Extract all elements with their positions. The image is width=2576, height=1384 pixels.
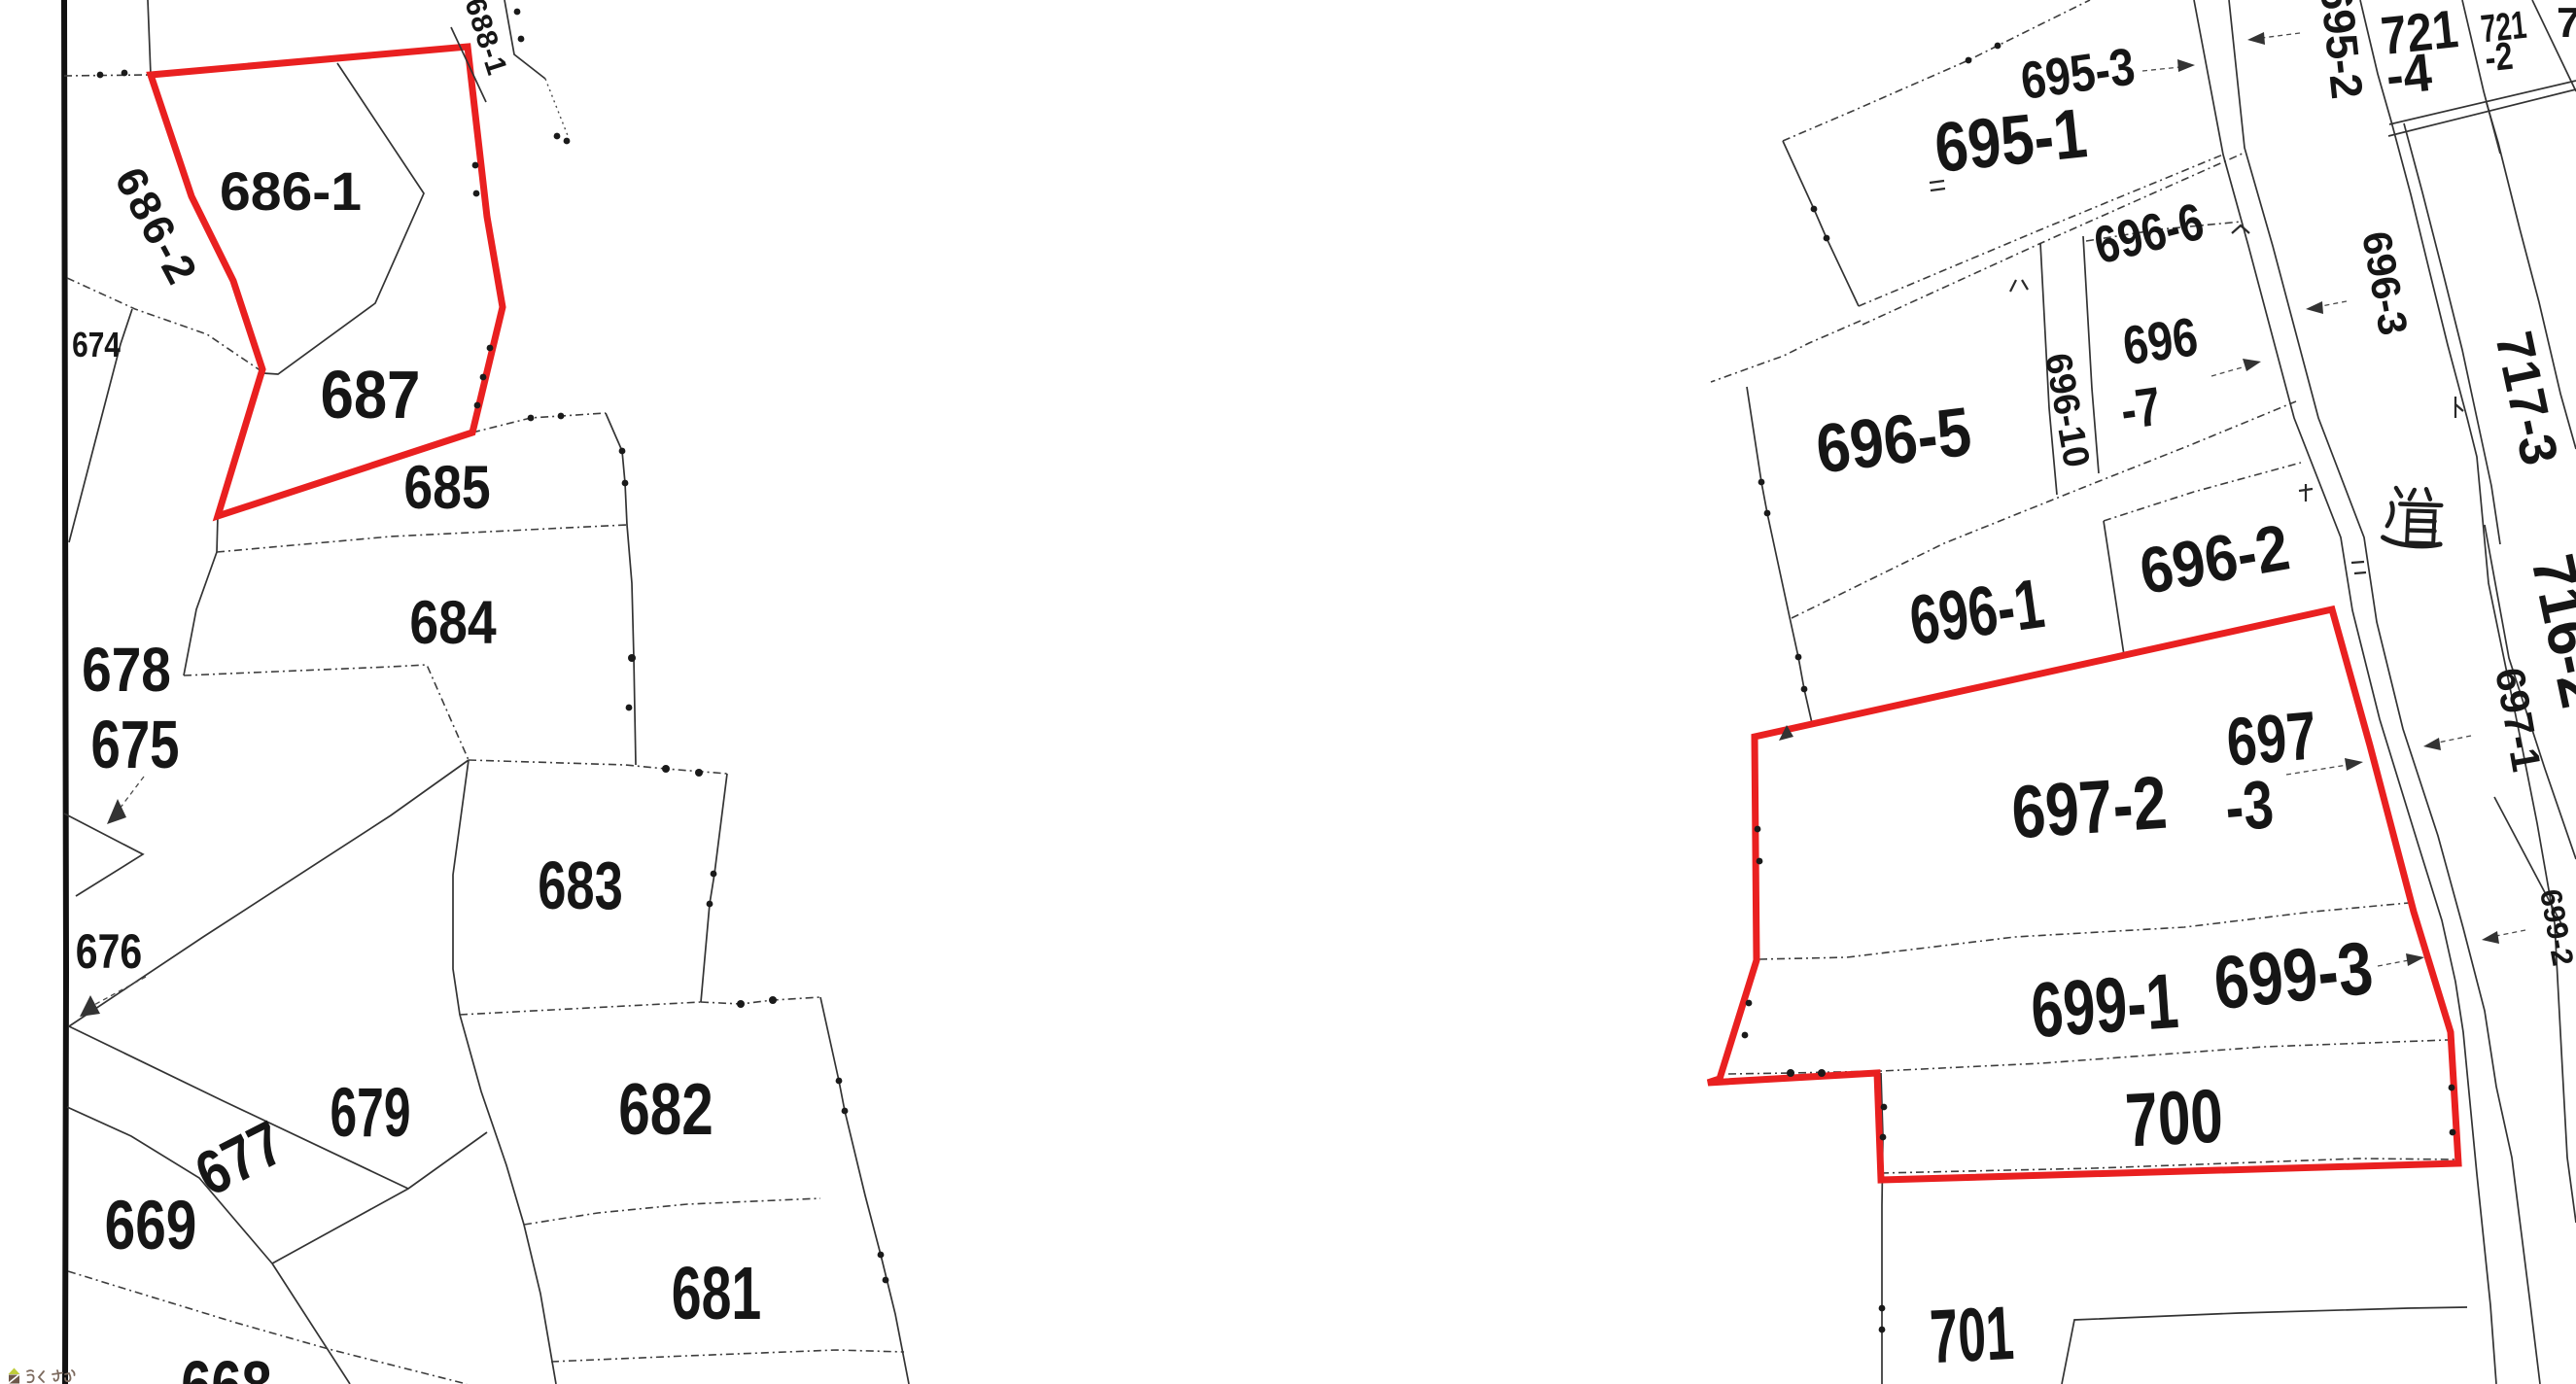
svg-text:699-1: 699-1 [2028,956,2180,1054]
svg-text:669: 669 [105,1187,197,1264]
svg-text:682: 682 [618,1069,714,1151]
svg-text:678: 678 [82,635,171,705]
svg-text:679: 679 [331,1074,411,1151]
svg-text:687: 687 [321,356,421,432]
svg-text:686-1: 686-1 [220,161,362,222]
svg-text:697: 697 [2224,698,2320,780]
svg-text:685: 685 [403,454,490,522]
svg-text:697-2: 697-2 [2009,760,2170,854]
svg-text:675: 675 [90,708,179,783]
svg-text:676: 676 [76,924,142,979]
svg-text:699-3: 699-3 [2210,925,2377,1025]
svg-text:700: 700 [2123,1073,2225,1163]
svg-text:695-1: 695-1 [1932,95,2091,189]
svg-text:701: 701 [1928,1291,2015,1380]
svg-text:-2: -2 [2483,33,2515,80]
svg-text:-7: -7 [2117,375,2165,440]
svg-text:668: 668 [181,1348,271,1384]
svg-text:674: 674 [72,326,121,364]
svg-text:-4: -4 [2384,43,2435,107]
svg-text:684: 684 [409,589,497,657]
svg-text:681: 681 [672,1252,761,1335]
svg-text:696: 696 [2119,306,2202,376]
svg-text:683: 683 [538,848,623,924]
svg-text:-3: -3 [2222,767,2277,847]
svg-text:7: 7 [2557,0,2576,47]
